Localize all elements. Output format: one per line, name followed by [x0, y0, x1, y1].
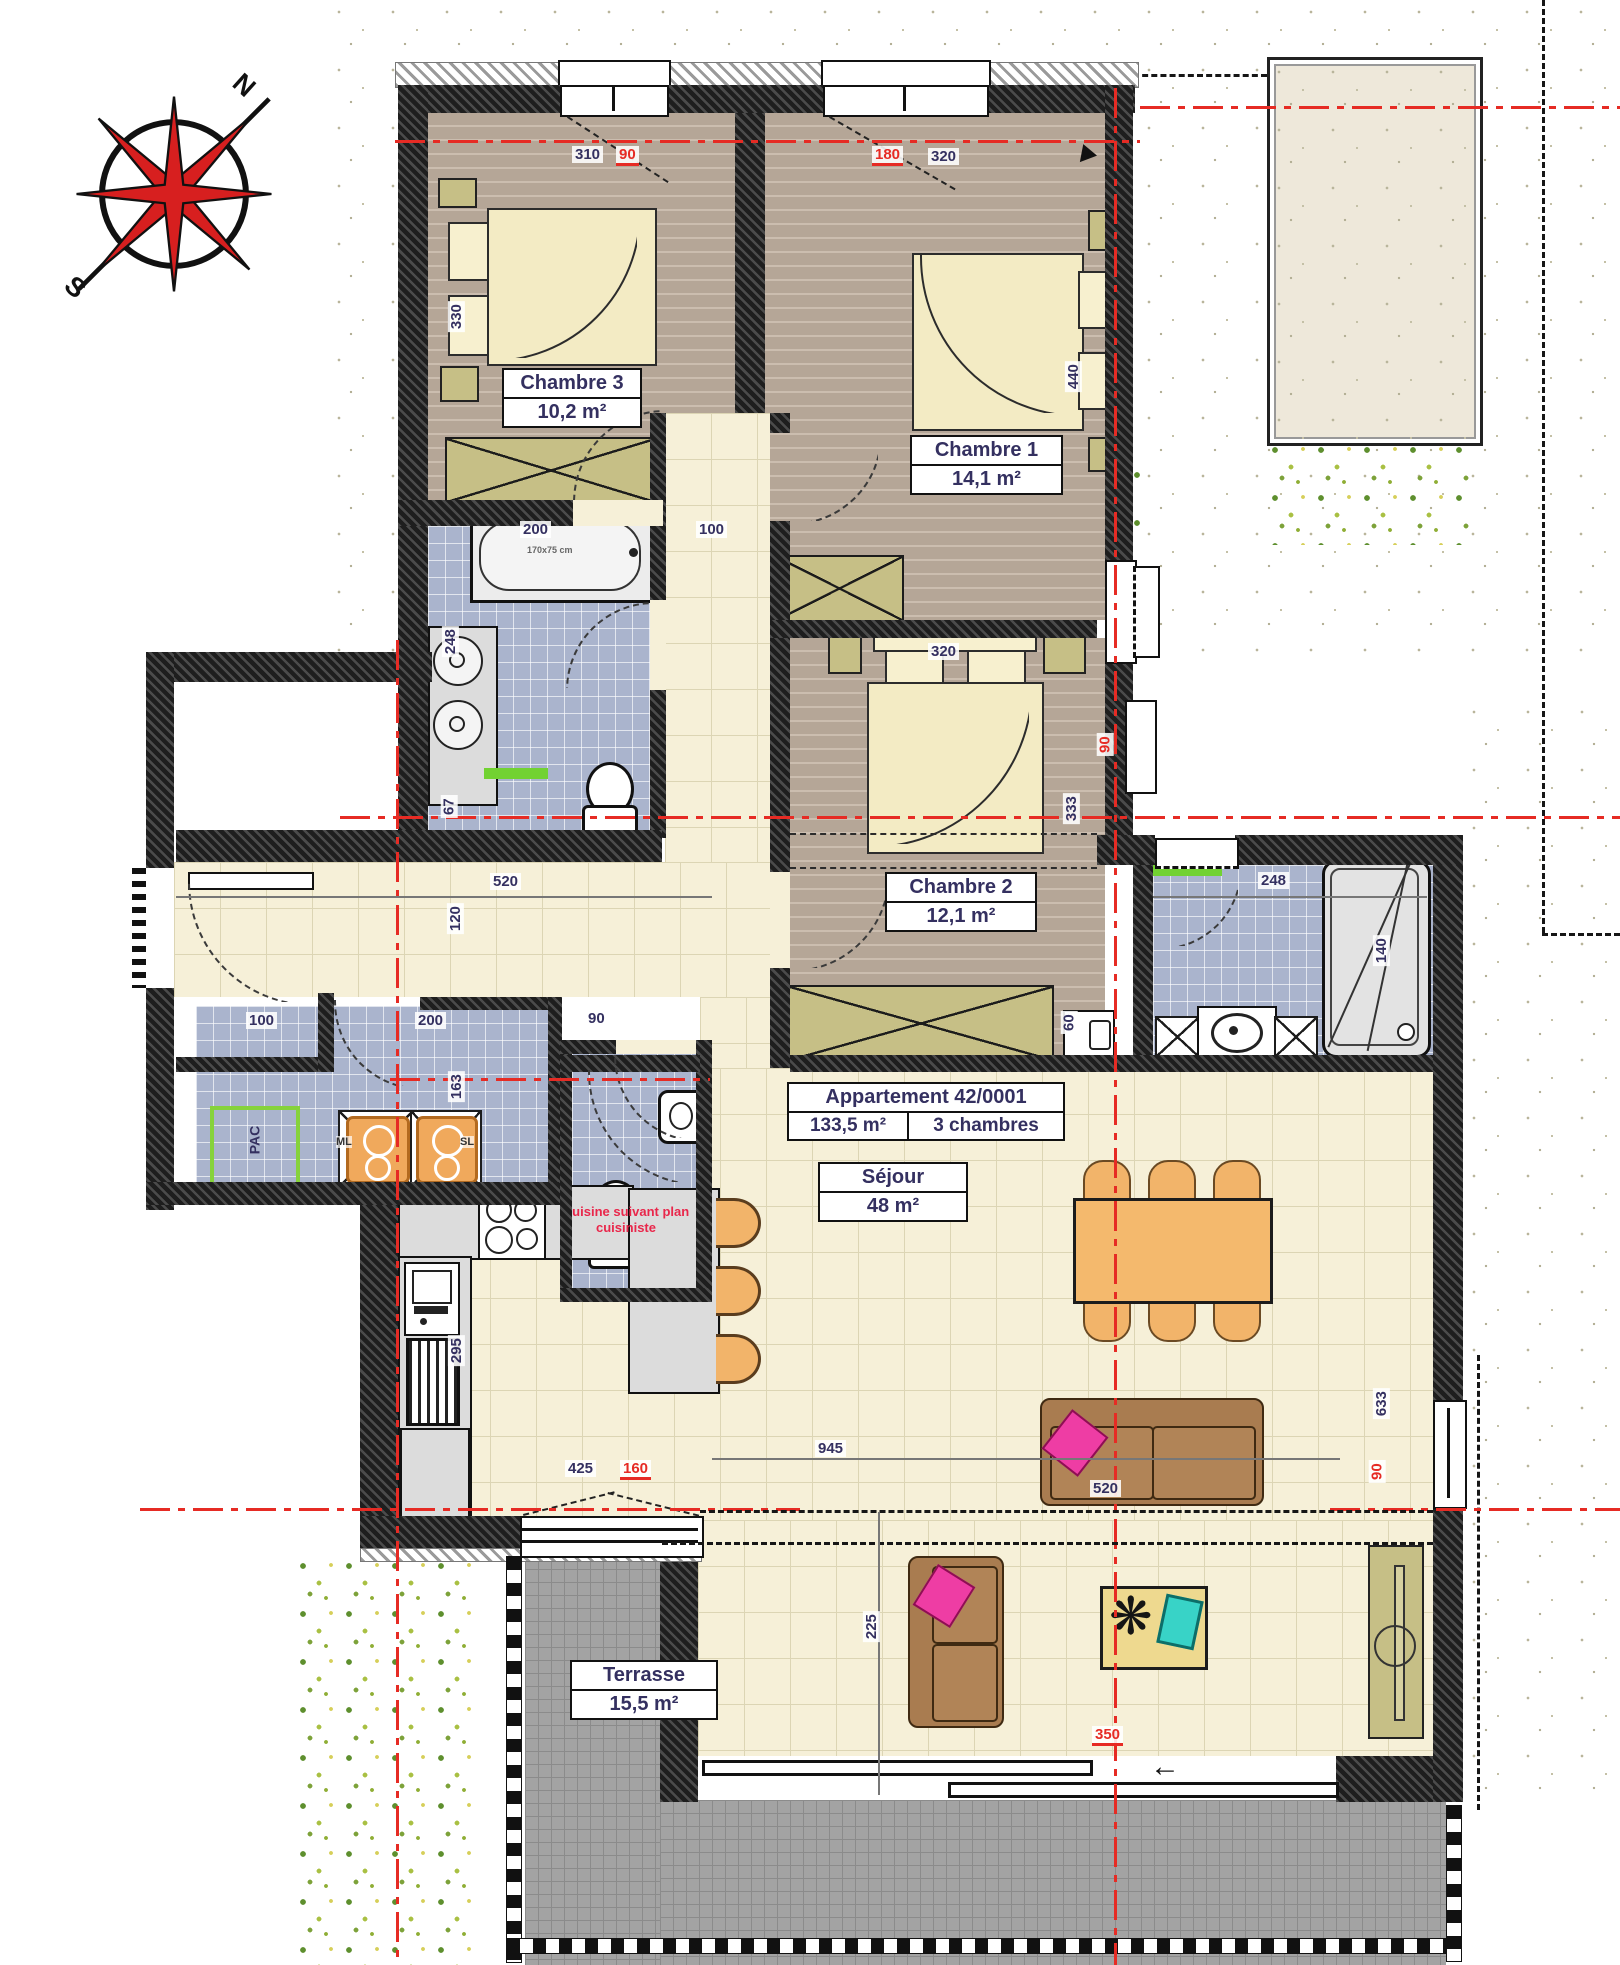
bathtub [470, 513, 654, 603]
dim-248-bath: 248 [442, 626, 459, 657]
dim-200-bath: 200 [520, 521, 551, 538]
chambre1-door-swing [790, 433, 878, 521]
dim-310: 310 [572, 146, 603, 163]
pac-label: PAC [246, 1126, 262, 1155]
kitchen-cupboard [400, 1428, 470, 1520]
wall [398, 85, 428, 845]
wall [735, 113, 765, 413]
wall [360, 1205, 398, 1520]
dim-100-corridor: 100 [696, 521, 727, 538]
kitchen-note-line2: cuisiniste [596, 1220, 656, 1235]
dim-60: 60 [1061, 1011, 1078, 1034]
slide-arrow-icon: ← [1150, 1750, 1180, 1784]
floor-corridor [665, 413, 770, 862]
wardrobe-chambre2 [788, 985, 1054, 1062]
floor-plan: N S PAC [0, 0, 1620, 1965]
magazine [1156, 1594, 1204, 1651]
shower-room-vanity [1197, 1006, 1277, 1060]
wall [560, 1040, 618, 1054]
kitchen-sink [404, 1262, 460, 1336]
ml-label: ML [336, 1136, 352, 1148]
axis-red-vertical-left [396, 640, 399, 1965]
cabinet-slot [1155, 1016, 1200, 1058]
kitchen-note-line1: Cuisine suivant plan [563, 1204, 689, 1219]
dim-225: 225 [863, 1611, 880, 1642]
dim-350: 350 [1092, 1726, 1123, 1746]
terrace-railing-left [506, 1556, 522, 1963]
room-area: 14,1 m² [910, 466, 1063, 495]
dim-100-wardrobe: 100 [246, 1012, 277, 1029]
wall [770, 620, 1097, 638]
wall [560, 1054, 572, 1288]
apartment-rooms-count: 3 chambres [909, 1113, 1065, 1141]
dim-945: 945 [815, 1440, 846, 1457]
laundry-door-swing [334, 1000, 420, 1086]
axis-red-middle [340, 816, 1620, 819]
sliding-bay-door: ← [700, 1756, 1336, 1800]
terrace-railing-bottom [506, 1938, 1448, 1954]
dryer [416, 1116, 478, 1184]
tub-size-label: 170x75 cm [527, 545, 573, 555]
dim-633: 633 [1373, 1388, 1390, 1419]
property-boundary-dashed-stub [1542, 933, 1620, 936]
dim-320-ch2: 320 [928, 643, 959, 660]
dim-440: 440 [1065, 361, 1082, 392]
wall [420, 997, 560, 1010]
label-chambre1: Chambre 1 14,1 m² [910, 435, 1063, 495]
label-terrasse: Terrasse 15,5 m² [570, 1660, 718, 1720]
window-kitchen [520, 1516, 704, 1558]
window-sill-right [1133, 566, 1160, 658]
dim-163: 163 [448, 1071, 465, 1102]
heat-pump-pac: PAC [210, 1106, 300, 1192]
entry-threshold-ticks [132, 868, 146, 988]
chambre3-door-gap [573, 500, 663, 526]
bathroom-door-gap [650, 600, 666, 690]
washbasin [433, 700, 483, 750]
shower-door-swing [1158, 866, 1238, 946]
dim-200-laundry: 200 [415, 1012, 446, 1029]
room-name: Terrasse [570, 1660, 718, 1691]
dim-180: 180 [872, 146, 903, 166]
dim-90-wc: 90 [585, 1010, 608, 1027]
room-area: 10,2 m² [502, 399, 642, 428]
sl-label: SL [460, 1136, 474, 1148]
dim-333: 333 [1063, 793, 1080, 824]
axis-red-laundry [390, 1078, 710, 1081]
property-boundary-dashed-right [1542, 0, 1545, 933]
label-sejour: Séjour 48 m² [818, 1162, 968, 1222]
wall [176, 830, 662, 862]
wc-door-gap [616, 1040, 696, 1054]
wall [398, 85, 1135, 113]
vegetation-strip-left [295, 1556, 475, 1965]
dimension-line-sejour [712, 1458, 1340, 1460]
wall [176, 1057, 334, 1072]
dining-table [1073, 1198, 1273, 1304]
wall [770, 968, 790, 1068]
apartment-title: Appartement 42/0001 [787, 1082, 1065, 1113]
dim-67: 67 [441, 795, 458, 818]
wall [770, 521, 790, 872]
room-name: Chambre 2 [885, 872, 1037, 903]
ceiling-dashed-ch2 [790, 833, 1097, 835]
wall [146, 988, 174, 1210]
window-chambre3 [560, 85, 669, 117]
neighbor-building [1267, 57, 1483, 446]
chambre2-door-gap [770, 872, 790, 968]
dim-90-right: 90 [1369, 1460, 1386, 1483]
ceiling-dashed-ch2 [790, 867, 1097, 869]
room-area: 15,5 m² [570, 1691, 718, 1720]
room-name: Séjour [818, 1162, 968, 1193]
pillow [448, 222, 489, 281]
window-chambre2 [1125, 700, 1157, 794]
dimension-line-lower [878, 1512, 880, 1795]
entry-door-gap [146, 868, 174, 988]
dim-160: 160 [620, 1460, 651, 1480]
wall [146, 652, 432, 682]
vegetation-strip-neighbor [1267, 440, 1472, 545]
dim-320-top: 320 [928, 148, 959, 165]
room-area: 12,1 m² [885, 903, 1037, 932]
tv-cabinet [1368, 1545, 1424, 1739]
wardrobe-chambre1 [775, 555, 904, 622]
nightstand [438, 178, 477, 208]
wall [1133, 865, 1153, 1055]
shower-room-door-gap [1155, 838, 1239, 869]
dim-90-window: 90 [1097, 733, 1114, 756]
sejour-door-swing [588, 1070, 700, 1182]
chambre2-door-swing [790, 872, 886, 968]
nightstand [1043, 633, 1086, 674]
room-name: Chambre 3 [502, 368, 642, 399]
dim-140: 140 [1373, 935, 1390, 966]
room-area: 48 m² [818, 1193, 968, 1222]
dim-330: 330 [448, 301, 465, 332]
axis-red-top-right [1140, 106, 1620, 109]
compass-star-icon [58, 68, 290, 320]
dim-90-top: 90 [616, 146, 639, 166]
label-chambre2: Chambre 2 12,1 m² [885, 872, 1037, 932]
wall [146, 1182, 562, 1205]
boundary-dashed-top [1133, 74, 1267, 77]
window-chambre1 [823, 85, 989, 117]
wall [790, 1055, 1433, 1072]
wall [146, 652, 174, 868]
dimension-line-hall [176, 896, 712, 898]
washing-machine [346, 1116, 410, 1184]
room-name: Chambre 1 [910, 435, 1063, 466]
terrace-railing-right [1446, 1805, 1462, 1962]
apartment-area: 133,5 m² [787, 1113, 909, 1141]
dim-248-shower: 248 [1258, 872, 1289, 889]
wall [1336, 1756, 1446, 1802]
dim-295: 295 [448, 1335, 465, 1366]
entry-door-swing [188, 880, 310, 1002]
wall [1433, 835, 1463, 1400]
boundary-dashed-lower-right [1477, 1355, 1480, 1810]
compass-rose: N S [58, 68, 290, 320]
floor-sejour-lower [698, 1520, 1433, 1756]
axis-red-top [395, 140, 1140, 143]
wall [1235, 835, 1463, 865]
window-right-lower [1433, 1400, 1467, 1509]
wall [1433, 1505, 1463, 1802]
dim-425: 425 [565, 1460, 596, 1477]
cabinet-slot [1274, 1016, 1318, 1058]
ceiling-dashed-sejour [662, 1542, 1433, 1545]
dim-120: 120 [447, 903, 464, 934]
wall [1097, 835, 1155, 865]
label-chambre3: Chambre 3 10,2 m² [502, 368, 642, 428]
wall [318, 993, 334, 1072]
wall [770, 413, 790, 433]
floor-terrace-left [525, 1556, 660, 1965]
dim-520-sofa: 520 [1090, 1480, 1121, 1497]
green-strip-bathroom [484, 768, 548, 779]
dim-520-hall: 520 [490, 873, 521, 890]
nightstand [828, 633, 862, 674]
wall [560, 1288, 712, 1302]
axis-red-vertical-right [1114, 88, 1117, 1965]
nightstand [440, 366, 479, 402]
ceiling-dashed-sejour [700, 1510, 1433, 1513]
label-apartment: Appartement 42/0001 133,5 m² 3 chambres [787, 1082, 1065, 1141]
bathroom-door-swing [566, 602, 652, 688]
